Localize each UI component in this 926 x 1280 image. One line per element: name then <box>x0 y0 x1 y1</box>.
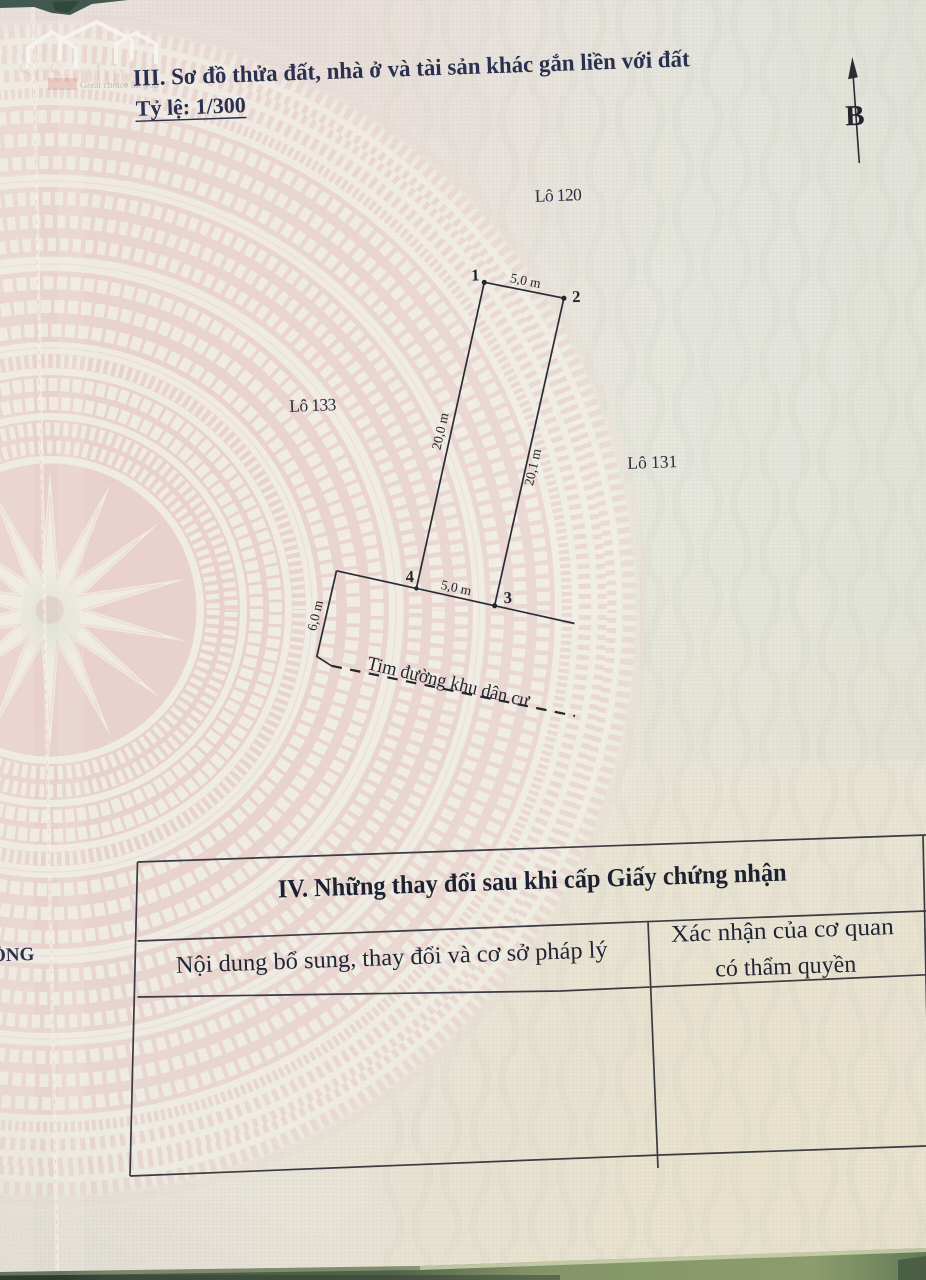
svg-text:2: 2 <box>572 287 581 306</box>
svg-text:4: 4 <box>405 567 414 586</box>
svg-text:Lô 133: Lô 133 <box>289 394 337 416</box>
svg-text:Lô 120: Lô 120 <box>534 184 582 206</box>
svg-text:1: 1 <box>471 265 480 284</box>
svg-text:Tỷ lệ: 1/300: Tỷ lệ: 1/300 <box>135 92 246 121</box>
svg-text:ỒNG: ỒNG <box>0 943 35 967</box>
svg-text:B: B <box>845 100 865 133</box>
svg-text:có thẩm quyền: có thẩm quyền <box>715 952 857 983</box>
svg-text:Lô 131: Lô 131 <box>627 451 678 473</box>
svg-text:3: 3 <box>503 588 512 607</box>
